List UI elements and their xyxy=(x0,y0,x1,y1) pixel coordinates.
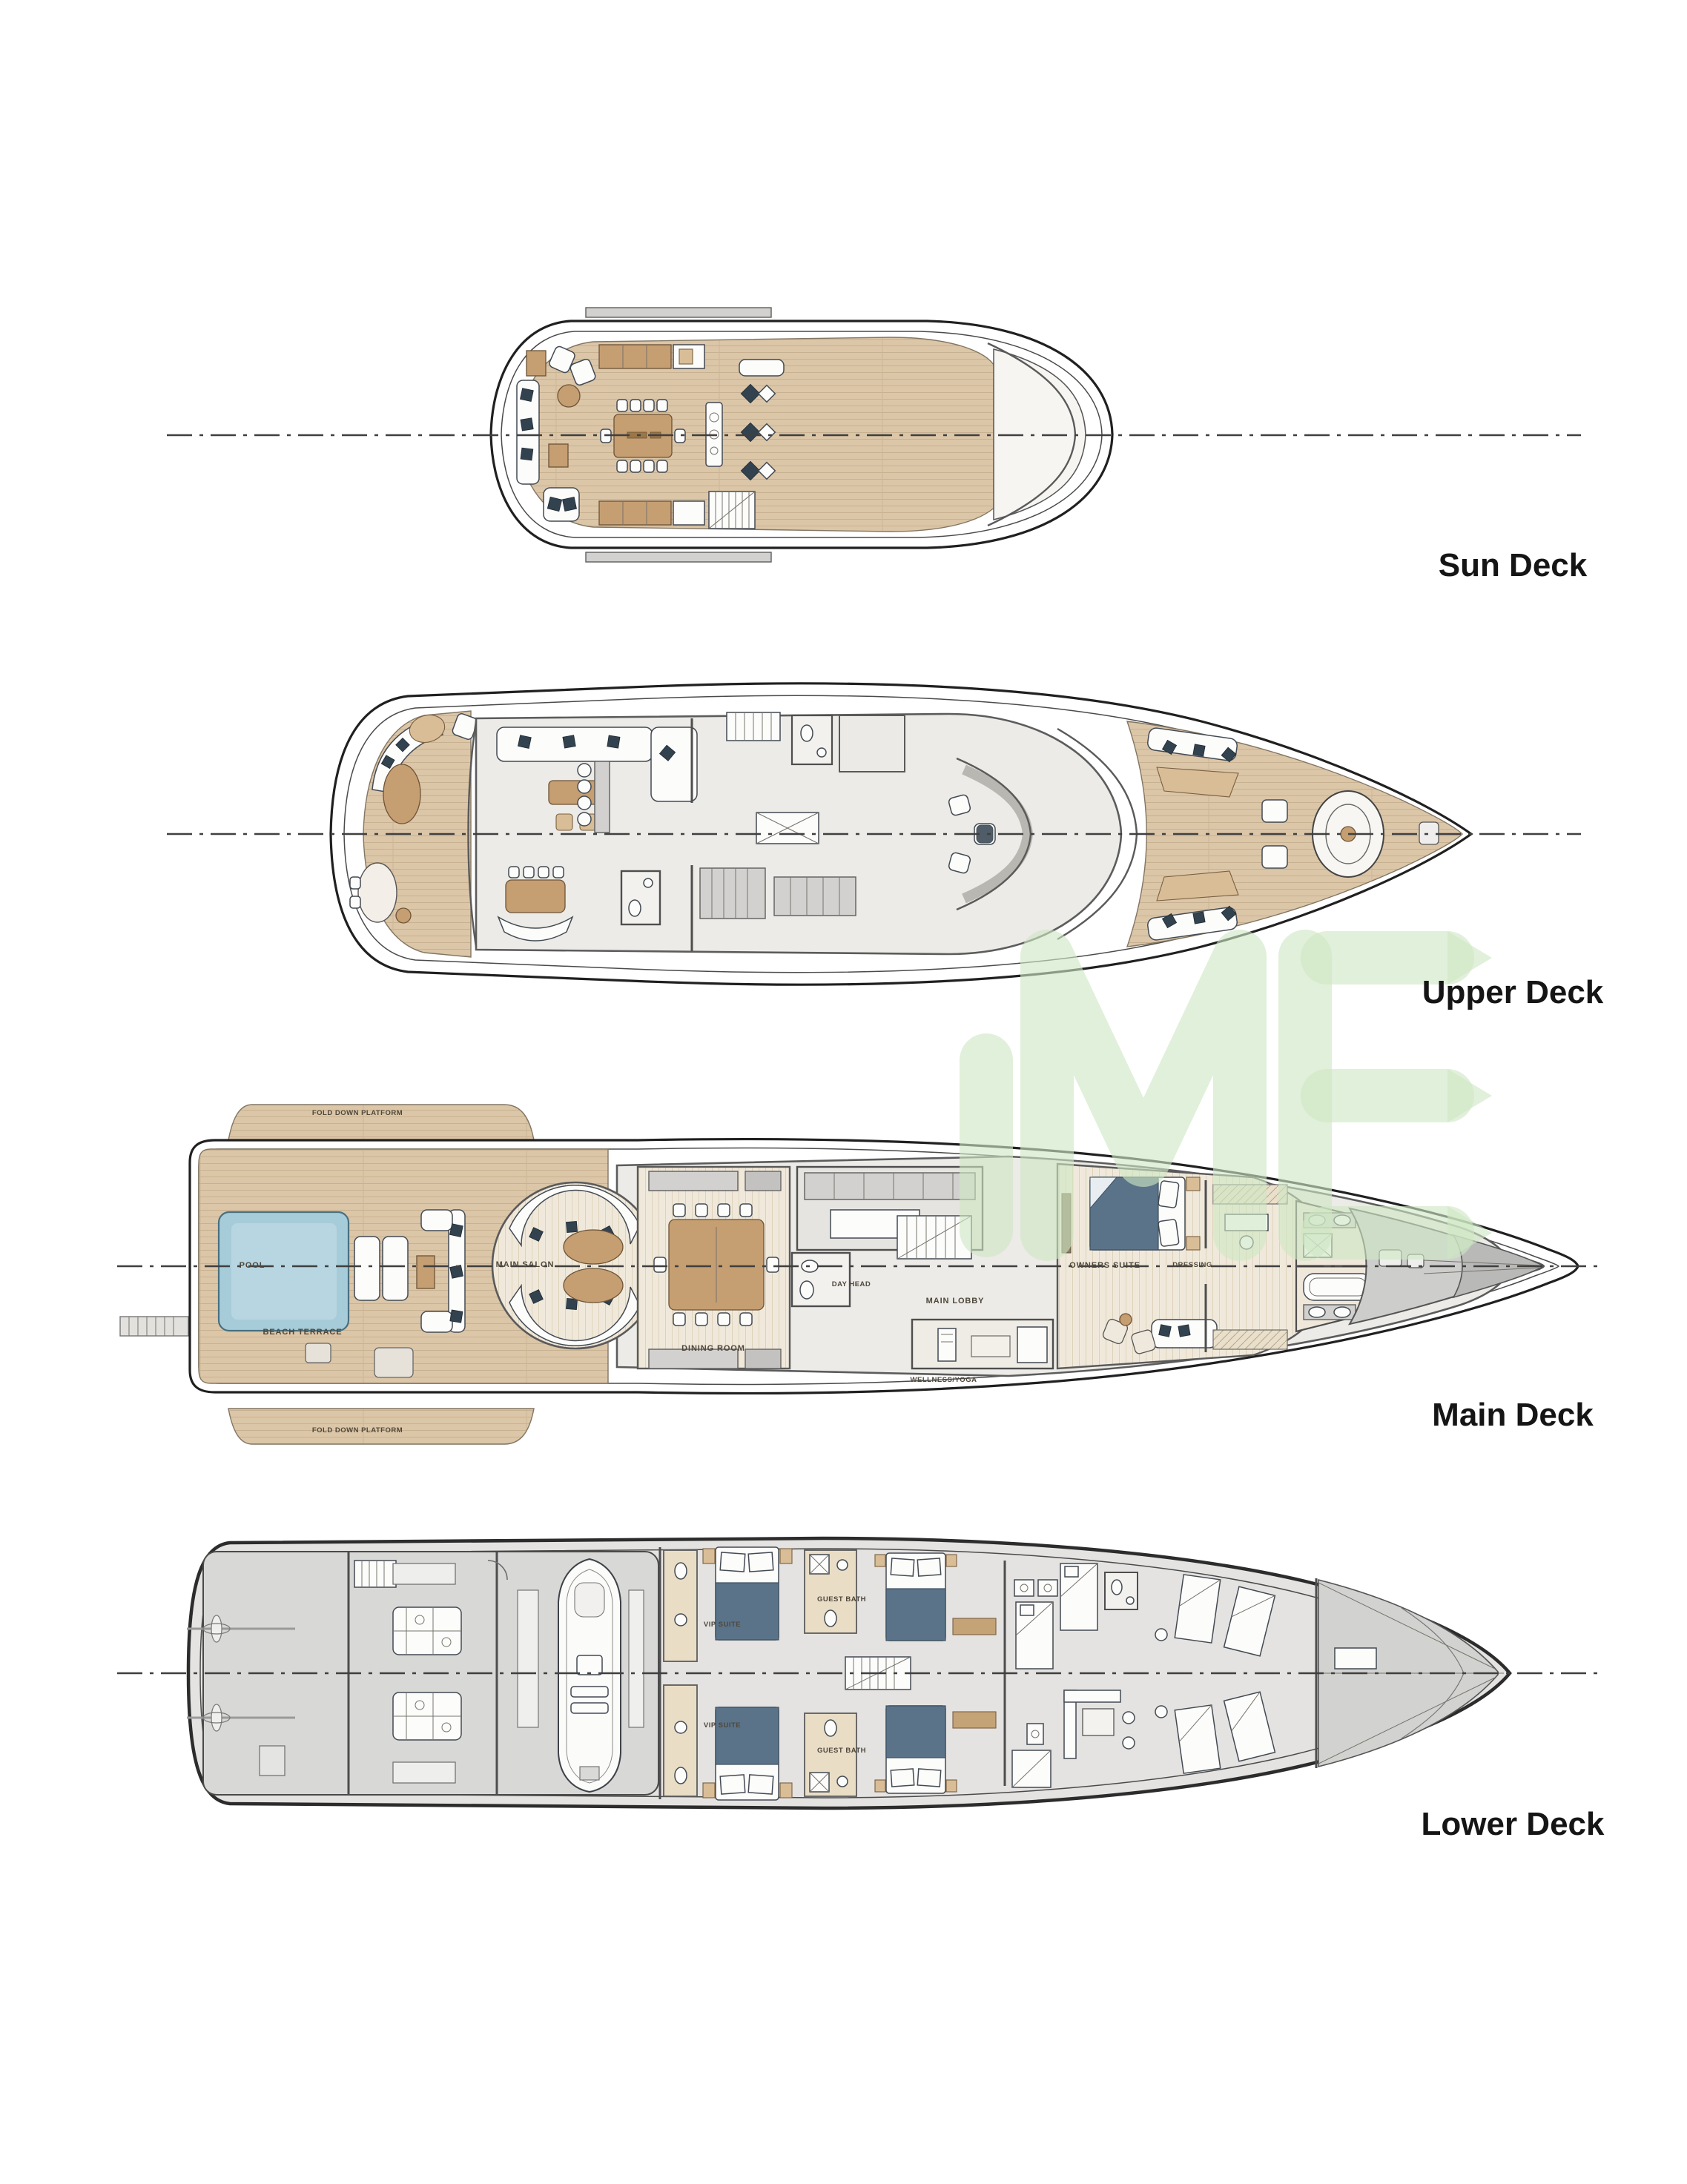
deck-title-main: Main Deck xyxy=(1364,1397,1661,1434)
label-wellness: WELLNESS/YOGA xyxy=(875,1376,1012,1384)
label-day-head: DAY HEAD xyxy=(811,1280,892,1288)
label-fold-platform-bottom: FOLD DOWN PLATFORM xyxy=(291,1426,424,1435)
label-vip-suite-bottom: VIP SUITE xyxy=(691,1721,753,1730)
label-vip-suite-top: VIP SUITE xyxy=(691,1621,753,1629)
deck-title-upper: Upper Deck xyxy=(1364,974,1661,1011)
label-guest-bath-bottom: GUEST BATH xyxy=(810,1747,874,1755)
label-fold-platform-top: FOLD DOWN PLATFORM xyxy=(291,1109,424,1117)
label-dining-room: DINING ROOM xyxy=(654,1344,773,1354)
label-pool: POOL xyxy=(222,1261,282,1271)
label-dressing: DRESSING xyxy=(1144,1261,1241,1269)
label-main-salon: MAIN SALON xyxy=(466,1260,584,1270)
centerlines xyxy=(0,0,1687,2184)
label-guest-bath-top: GUEST BATH xyxy=(810,1595,874,1604)
label-main-lobby: MAIN LOBBY xyxy=(896,1297,1014,1306)
deck-title-lower: Lower Deck xyxy=(1364,1806,1661,1843)
page: Sun Deck Upper Deck Main Deck Lower Deck… xyxy=(0,0,1687,2184)
label-beach-terrace: BEACH TERRACE xyxy=(243,1328,362,1337)
deck-title-sun: Sun Deck xyxy=(1364,547,1661,584)
